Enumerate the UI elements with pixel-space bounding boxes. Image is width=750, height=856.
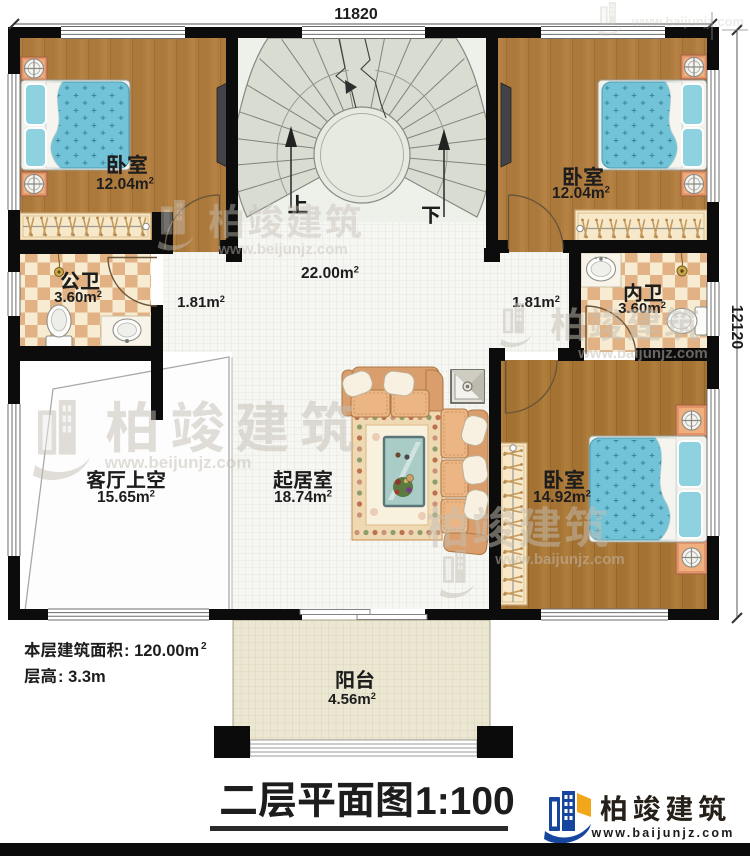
- svg-text:22.00m2: 22.00m2: [301, 265, 359, 282]
- svg-text:15.65m2: 15.65m2: [97, 489, 155, 506]
- svg-text:4.56m2: 4.56m2: [328, 691, 376, 708]
- svg-text:www.baijunjz.com: www.baijunjz.com: [590, 826, 734, 840]
- svg-text:12.04m2: 12.04m2: [96, 176, 154, 193]
- svg-text:www.beijunjz.com: www.beijunjz.com: [217, 241, 347, 258]
- svg-text:1.81m2: 1.81m2: [177, 294, 225, 311]
- svg-text:: 120.00m: : 120.00m: [124, 642, 199, 660]
- svg-text:www.baijunjz.com: www.baijunjz.com: [494, 551, 624, 568]
- svg-text:1:100: 1:100: [415, 780, 515, 823]
- svg-text:11820: 11820: [334, 6, 378, 23]
- svg-text:3.60m2: 3.60m2: [618, 300, 666, 317]
- svg-text:18.74m2: 18.74m2: [274, 489, 332, 506]
- svg-text:2: 2: [201, 641, 207, 652]
- svg-text:www.baijunjz.com: www.baijunjz.com: [631, 14, 744, 29]
- svg-text:12120: 12120: [728, 305, 745, 350]
- svg-text:12.04m2: 12.04m2: [552, 185, 610, 202]
- svg-text:3.60m2: 3.60m2: [54, 289, 102, 306]
- svg-text:www.beijunjz.com: www.beijunjz.com: [104, 453, 252, 472]
- svg-text:14.92m2: 14.92m2: [533, 489, 591, 506]
- svg-text:: 3.3m: : 3.3m: [58, 668, 106, 686]
- svg-text:www.baijunjz.com: www.baijunjz.com: [577, 345, 707, 362]
